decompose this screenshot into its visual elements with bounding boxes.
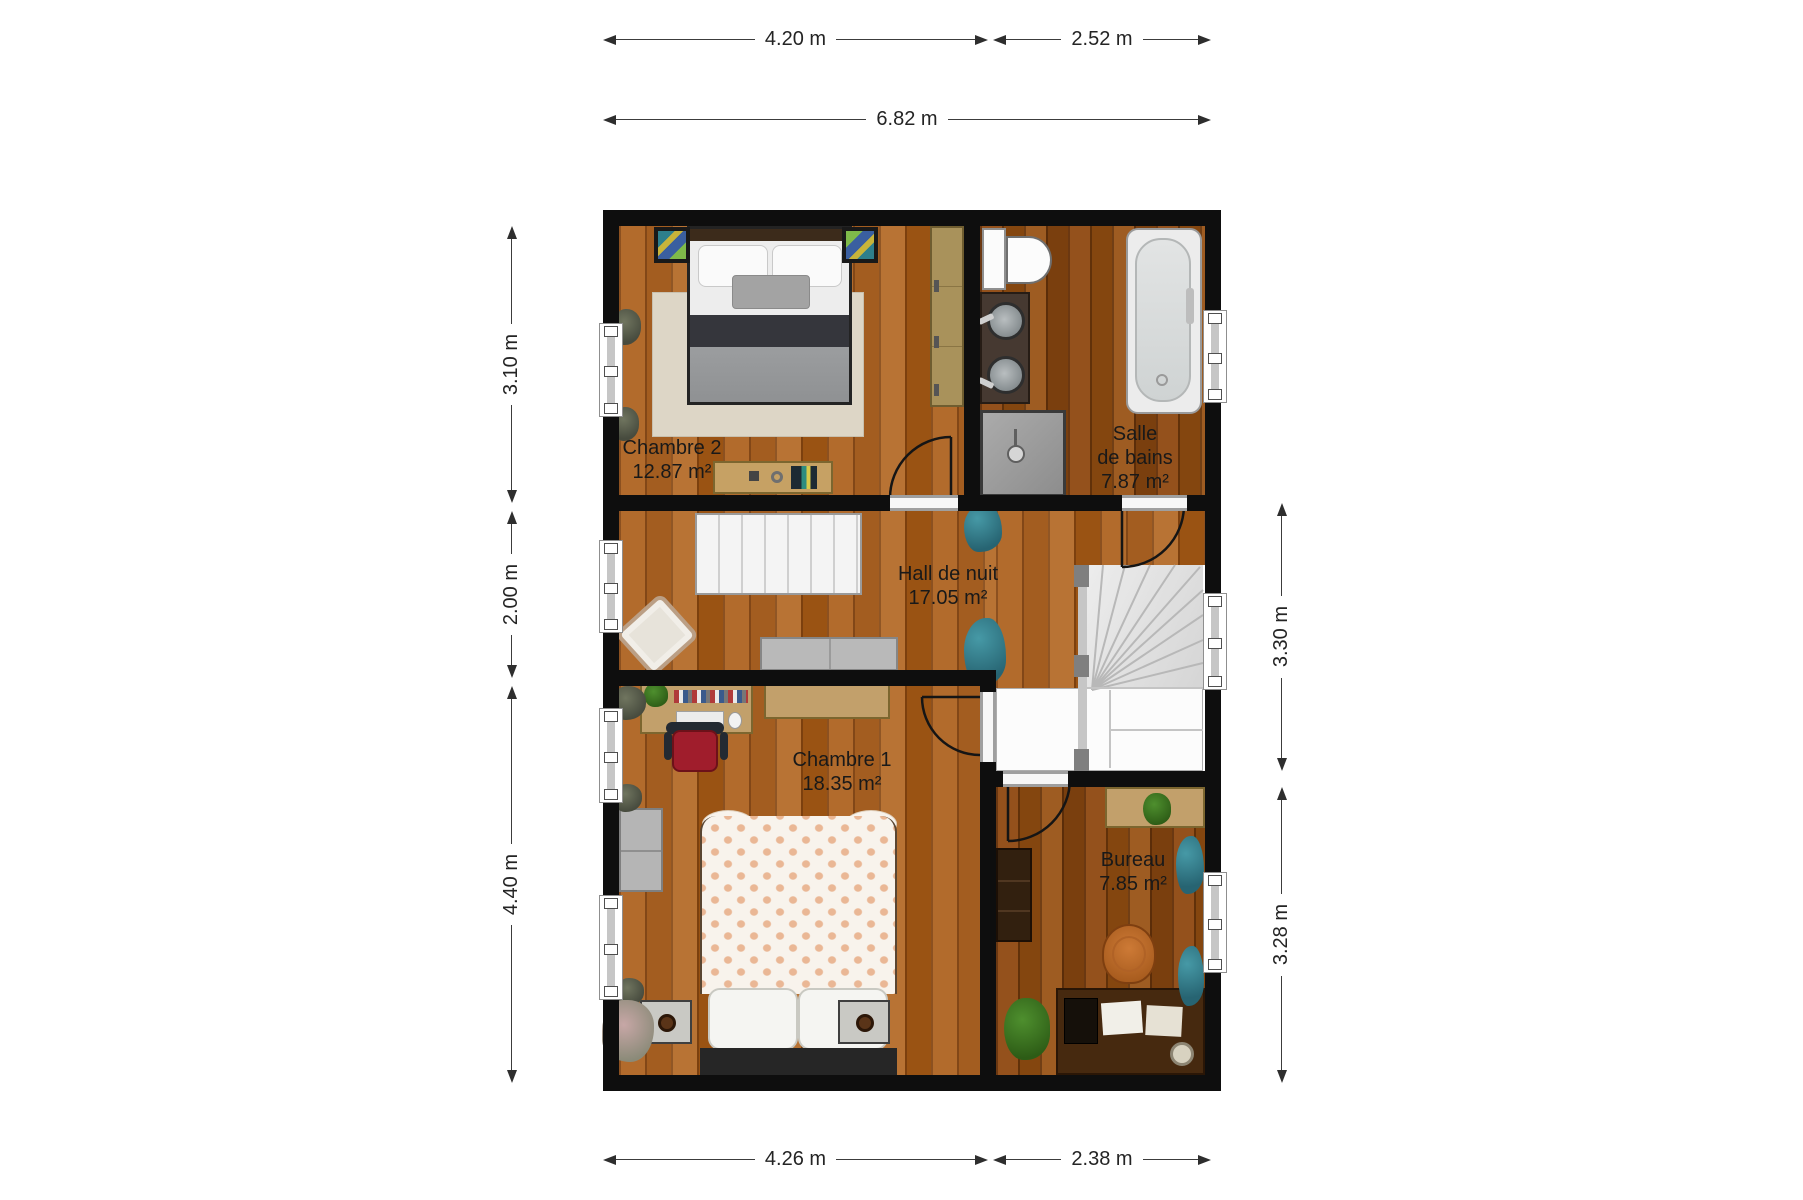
armchair-frame	[615, 593, 700, 678]
dim-label: 3.30 m	[1270, 596, 1293, 677]
window-handle	[1208, 676, 1222, 687]
office-chair-arm	[664, 732, 672, 760]
plant-teal	[964, 504, 1002, 552]
plant-teal	[1178, 946, 1204, 1006]
dim-label: 3.28 m	[1270, 894, 1293, 975]
dim-label: 2.52 m	[1061, 28, 1142, 51]
arrow-left-icon	[603, 1155, 616, 1165]
dimension-left-middle: 2.00 m	[500, 511, 523, 678]
armchair-bureau	[1102, 924, 1156, 984]
wall-right	[1205, 210, 1221, 310]
floor-hall-right-strip	[996, 511, 1205, 565]
console-plant	[1143, 793, 1171, 825]
office-chair-seat	[672, 730, 718, 772]
wall-interior	[603, 495, 890, 511]
room-label-hall: Hall de nuit 17.05 m²	[868, 562, 1028, 610]
arrow-right-icon	[975, 1155, 988, 1165]
dimension-top-total: 6.82 m	[603, 108, 1211, 131]
window-handle	[604, 944, 618, 955]
room-label-chambre1: Chambre 1 18.35 m²	[762, 748, 922, 796]
paper	[1145, 1005, 1183, 1037]
window-handle	[604, 366, 618, 377]
wall-interior	[1068, 771, 1221, 787]
dim-line	[1281, 516, 1282, 596]
dim-line	[616, 119, 866, 120]
dimension-top-left: 4.20 m	[603, 28, 988, 51]
arrow-down-icon	[507, 490, 517, 503]
room-name: Chambre 2	[592, 436, 752, 460]
window	[599, 895, 623, 1000]
dim-line	[511, 239, 512, 324]
room-name: Salle	[1065, 422, 1205, 446]
vanity	[980, 292, 1030, 404]
window-handle	[1208, 389, 1222, 400]
dimension-left-lower: 4.40 m	[500, 686, 523, 1083]
dim-label: 4.40 m	[500, 844, 523, 925]
arrow-up-icon	[507, 226, 517, 239]
arrow-up-icon	[1277, 787, 1287, 800]
desk-plant	[644, 683, 668, 707]
dim-line	[511, 405, 512, 490]
arrow-right-icon	[1198, 35, 1211, 45]
dim-line	[511, 699, 512, 844]
dim-label: 4.26 m	[755, 1148, 836, 1171]
railing-post	[1074, 565, 1089, 587]
wall-interior	[958, 495, 1122, 511]
wall-bottom	[603, 1075, 1221, 1091]
arrow-up-icon	[1277, 503, 1287, 516]
window	[1203, 872, 1227, 973]
bathtub-drain	[1156, 374, 1168, 386]
room-label-salle-de-bains: Salle de bains 7.87 m²	[1065, 422, 1205, 494]
wall-left	[603, 803, 619, 895]
sink	[987, 302, 1025, 340]
arrow-left-icon	[993, 35, 1006, 45]
dimension-bottom-left: 4.26 m	[603, 1148, 988, 1171]
dim-label: 2.00 m	[500, 554, 523, 635]
bathtub	[1126, 228, 1202, 414]
room-name: Bureau	[1063, 848, 1203, 872]
dimension-right-lower: 3.28 m	[1270, 787, 1293, 1083]
room-area: 18.35 m²	[762, 772, 922, 796]
window-handle	[1208, 596, 1222, 607]
dim-line	[1281, 976, 1282, 1070]
dimension-top-right: 2.52 m	[993, 28, 1211, 51]
headboard	[700, 1048, 897, 1075]
wall-interior	[980, 771, 1003, 787]
dim-label: 2.38 m	[1061, 1148, 1142, 1171]
sink	[987, 356, 1025, 394]
bookcase-bureau	[996, 848, 1032, 942]
stair-straight	[695, 513, 862, 595]
nightstand	[842, 227, 878, 263]
room-area: 12.87 m²	[592, 460, 752, 484]
arrow-right-icon	[1198, 1155, 1211, 1165]
window-handle	[1208, 638, 1222, 649]
dim-line	[511, 925, 512, 1070]
room-label-bureau: Bureau 7.85 m²	[1063, 848, 1203, 896]
railing-post	[1074, 749, 1089, 771]
dim-label: 6.82 m	[866, 108, 947, 131]
window-handle	[604, 403, 618, 414]
laptop	[1064, 998, 1098, 1044]
dim-line	[1143, 39, 1198, 40]
window-handle	[604, 543, 618, 554]
plant-green-bureau	[1004, 998, 1050, 1060]
nightstand-decor	[658, 231, 686, 259]
window	[1203, 310, 1227, 403]
window-handle	[1208, 919, 1222, 930]
window-handle	[604, 583, 618, 594]
dim-line	[1281, 800, 1282, 894]
arrow-right-icon	[1198, 115, 1211, 125]
nightstand-knob	[658, 1014, 676, 1032]
nightstand-decor	[846, 231, 874, 259]
dim-line	[948, 119, 1198, 120]
wall-interior	[1187, 495, 1221, 511]
arrow-left-icon	[603, 35, 616, 45]
dim-line	[836, 39, 975, 40]
arrow-left-icon	[603, 115, 616, 125]
dim-label: 3.10 m	[500, 324, 523, 405]
nightstand	[838, 1000, 890, 1044]
window	[599, 540, 623, 633]
desk-books	[674, 690, 748, 703]
wall-left	[603, 1000, 619, 1091]
window-handle	[604, 898, 618, 909]
arrow-down-icon	[1277, 1070, 1287, 1083]
shower	[980, 410, 1066, 497]
arrow-up-icon	[507, 511, 517, 524]
dim-line	[1143, 1159, 1198, 1160]
arrow-up-icon	[507, 686, 517, 699]
armchair-tuft	[1112, 936, 1146, 972]
stair-landing	[996, 688, 1203, 771]
door-threshold-chambre1	[980, 692, 996, 762]
window-handle	[1208, 353, 1222, 364]
wall-interior	[980, 670, 996, 692]
dimension-bottom-right: 2.38 m	[993, 1148, 1211, 1171]
bed-chambre2	[687, 226, 852, 405]
pillow	[708, 988, 798, 1050]
door-threshold-chambre2	[890, 495, 958, 511]
console-bureau	[1105, 787, 1205, 828]
window	[1203, 593, 1227, 690]
decor-ring	[771, 471, 783, 483]
arrow-down-icon	[1277, 758, 1287, 771]
wall-right	[1205, 973, 1221, 1091]
dim-line	[1006, 1159, 1061, 1160]
dim-line	[511, 524, 512, 554]
nightstand-knob	[856, 1014, 874, 1032]
arrow-down-icon	[507, 665, 517, 678]
dim-line	[616, 39, 755, 40]
room-name: Hall de nuit	[868, 562, 1028, 586]
door-threshold-salle-de-bains	[1122, 495, 1187, 511]
desk-clock	[1170, 1042, 1194, 1066]
armchair-hall	[616, 596, 700, 676]
arrow-right-icon	[975, 35, 988, 45]
duvet-patterned	[700, 816, 897, 994]
shelf-line	[998, 880, 1030, 882]
dimension-left-upper: 3.10 m	[500, 226, 523, 503]
dimension-right-upper: 3.30 m	[1270, 503, 1293, 771]
toilet-tank	[982, 228, 1006, 290]
room-name: de bains	[1065, 446, 1205, 470]
window-handle	[604, 619, 618, 630]
wall-left	[603, 210, 619, 323]
shower-head	[1007, 445, 1025, 463]
window-handle	[1208, 959, 1222, 970]
wall-interior	[964, 226, 980, 495]
window-handle	[604, 326, 618, 337]
office-chair-arm	[720, 732, 728, 760]
window	[599, 323, 623, 417]
window-handle	[604, 711, 618, 722]
wardrobe-chambre2	[930, 226, 964, 407]
dim-label: 4.20 m	[755, 28, 836, 51]
window-handle	[604, 789, 618, 800]
sideboard-divider	[829, 639, 831, 669]
bathtub-faucet	[1186, 288, 1194, 324]
window-handle	[1208, 875, 1222, 886]
dim-line	[616, 1159, 755, 1160]
duvet-band	[690, 315, 849, 347]
window-handle	[1208, 313, 1222, 324]
decor-art	[791, 466, 817, 489]
arrow-left-icon	[993, 1155, 1006, 1165]
window-handle	[604, 752, 618, 763]
wardrobe-handle	[934, 384, 939, 396]
railing-post	[1074, 655, 1089, 677]
room-area: 7.87 m²	[1065, 470, 1205, 494]
room-label-chambre2: Chambre 2 12.87 m²	[592, 436, 752, 484]
wall-top	[603, 210, 1221, 226]
stair-winder-area	[1085, 565, 1203, 688]
paper	[1101, 1001, 1143, 1036]
room-area: 17.05 m²	[868, 586, 1028, 610]
shelf-line	[998, 910, 1030, 912]
wardrobe-handle	[934, 336, 939, 348]
dim-line	[1006, 39, 1061, 40]
dim-line	[1281, 678, 1282, 758]
room-name: Chambre 1	[762, 748, 922, 772]
door-threshold-bureau	[1003, 771, 1068, 787]
toilet-bowl	[1006, 236, 1052, 284]
headboard	[690, 229, 849, 241]
wall-interior	[980, 787, 996, 1075]
dim-line	[836, 1159, 975, 1160]
nightstand	[654, 227, 690, 263]
mouse	[728, 712, 742, 729]
room-area: 7.85 m²	[1063, 872, 1203, 896]
window-handle	[604, 986, 618, 997]
wardrobe-handle	[934, 280, 939, 292]
dim-line	[511, 635, 512, 665]
cushion	[732, 275, 810, 309]
blanket	[690, 347, 849, 402]
window	[599, 708, 623, 803]
wardrobe-divider	[621, 850, 661, 852]
floor-plan-page: Chambre 2 12.87 m² Salle de bains 7.87 m…	[0, 0, 1803, 1200]
wall-interior	[603, 670, 996, 686]
arrow-down-icon	[507, 1070, 517, 1083]
wardrobe-chambre1	[619, 808, 663, 892]
armchair-seat	[629, 607, 686, 663]
sideboard-hall	[760, 637, 898, 671]
